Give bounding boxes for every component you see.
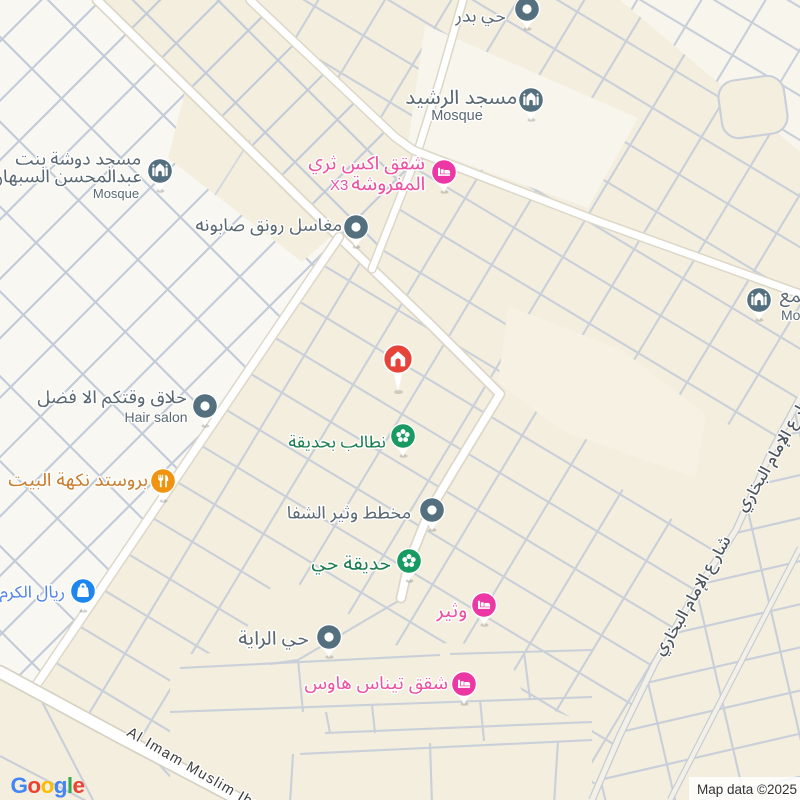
svg-text:Mosque: Mosque — [431, 108, 483, 124]
svg-text:Map data ©2025: Map data ©2025 — [697, 782, 797, 797]
svg-text:Hair salon: Hair salon — [124, 409, 187, 425]
svg-text:Mosque: Mosque — [781, 307, 800, 323]
svg-text:Google: Google — [11, 773, 85, 798]
svg-text:Mosque: Mosque — [93, 186, 139, 201]
svg-text:X3: X3 — [330, 177, 348, 194]
